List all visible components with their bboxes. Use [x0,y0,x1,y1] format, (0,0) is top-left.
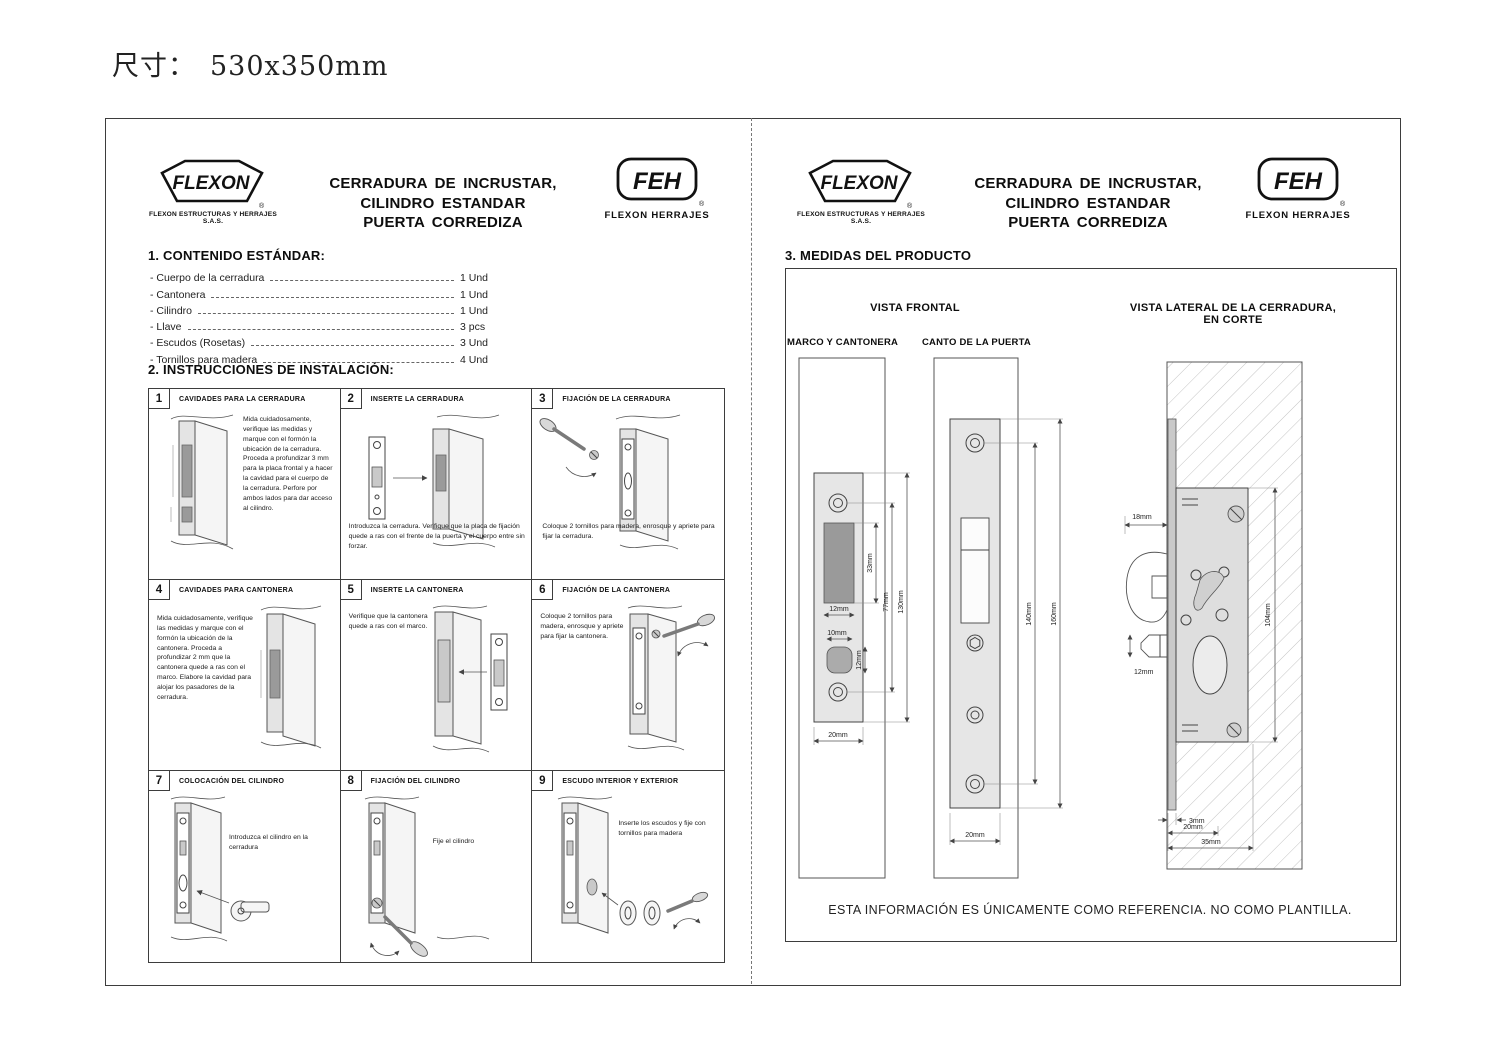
step-caption: Introduzca la cerradura. Verifique que l… [349,522,527,552]
hook-hole [827,647,852,673]
feh-logo: FEH ® [597,156,717,206]
marco-label: MARCO Y CANTONERA [787,337,927,348]
step-panel-1: 1 CAVIDADES PARA LA CERRADURA Mida cuida… [149,389,341,580]
step-number: 8 [341,771,362,791]
flexon-logo: FLEXON ® [155,158,270,208]
flexon-logo-icon: FLEXON ® [155,158,270,210]
lock-faceplate [622,439,634,519]
flexon-logo-subtext: FLEXON ESTRUCTURAS Y HERRAJES S.A.S. [138,211,288,225]
step-title: CAVIDADES PARA CANTONERA [170,580,293,600]
step-caption: Inserte los escudos y fije con tornillos… [618,819,718,839]
latch-slot [824,523,854,603]
step-number: 6 [532,580,553,600]
latch-window [961,518,989,623]
step-title: FIJACIÓN DE LA CANTONERA [553,580,670,600]
step-number: 7 [149,771,170,791]
size-label: 尺寸： [112,51,196,82]
canto-label: CANTO DE LA PUERTA [922,337,1062,348]
escutcheon [620,901,636,925]
svg-text:130mm: 130mm [898,590,905,614]
section3-title: 3. MEDIDAS DEL PRODUCTO [785,248,971,263]
step-number: 2 [341,389,362,409]
lock-faceplate-edge [1168,419,1176,810]
marco-drawing: 12mm 10mm 12mm 33mm 77mm 130mm 20mm [795,352,940,886]
svg-text:12mm: 12mm [1134,669,1154,676]
flexon-logo-right: FLEXON ® [803,158,918,208]
scanned-instruction-sheet: { "meta": { "size_label": "尺寸：", "size_v… [0,0,1497,1058]
section1-title: 1. CONTENIDO ESTÁNDAR: [148,248,325,263]
cylinder-hole [587,879,597,895]
svg-text:140mm: 140mm [1026,602,1033,626]
svg-text:33mm: 33mm [867,553,874,573]
step-panel-9: 9 ESCUDO INTERIOR Y EXTERIOR Inserte los… [532,771,724,962]
step-panel-4: 4 CAVIDADES PARA CANTONERA Mida cuidados… [149,580,341,771]
step-caption: Introduzca el cilindro en la cerradura [229,833,333,853]
svg-text:FLEXON: FLEXON [820,173,898,194]
feh-logo-right: FEH ® [1238,156,1358,206]
list-item: Llave3 pcs [150,317,502,333]
flexon-logo-subtext: FLEXON ESTRUCTURAS Y HERRAJES S.A.S. [786,211,936,225]
step-panel-2: 2 INSERTE LA CERRADURA Introduzca la cer… [341,389,533,580]
step-panel-5: 5 INSERTE LA CANTONERA Verifique que la … [341,580,533,771]
svg-text:10mm: 10mm [827,630,847,637]
step-panel-3: 3 FIJACIÓN DE LA CERRADURA Coloque 2 tor… [532,389,724,580]
step8-illustration [341,791,531,961]
svg-text:FLEXON: FLEXON [172,173,250,194]
sheet-size-note: 尺寸：530x350mm [112,44,389,83]
strike-cavity [270,650,280,698]
svg-text:77mm: 77mm [883,592,890,612]
step-caption: Coloque 2 tornillos para madera, enrosqu… [540,612,628,642]
latch-bolt [1141,635,1167,657]
list-item: Cilindro1 Und [150,301,502,317]
contents-list: Cuerpo de la cerradura1 Und Cantonera1 U… [150,268,502,366]
lock-faceplate [177,813,189,913]
side-view-label: VISTA LATERAL DE LA CERRADURA, EN CORTE [1118,302,1348,326]
svg-text:®: ® [699,200,705,208]
page1-title: CERRADURA DE INCRUSTAR, CILINDRO ESTANDA… [323,174,563,233]
svg-text:®: ® [907,202,913,210]
svg-text:20mm: 20mm [965,832,985,839]
feh-logo-subtext: FLEXON HERRAJES [1233,210,1363,221]
flexon-logo-icon: FLEXON ® [803,158,918,210]
page-fold-divider [751,118,752,984]
feh-logo-subtext: FLEXON HERRAJES [592,210,722,221]
svg-text:20mm: 20mm [828,732,848,739]
svg-text:160mm: 160mm [1051,602,1058,626]
strike-plate [633,628,645,714]
screwdriver-handle [696,612,716,628]
list-item: Escudos (Rosetas)3 Und [150,333,502,349]
svg-text:20mm: 20mm [1183,824,1203,831]
step-caption: Mida cuidadosamente, verifique las medid… [243,415,333,513]
step-number: 3 [532,389,553,409]
step-caption: Fije el cilindro [433,837,513,847]
reference-disclaimer: ESTA INFORMACIÓN ES ÚNICAMENTE COMO REFE… [790,903,1390,917]
lock-cavity [182,445,192,497]
list-item: Cantonera1 Und [150,284,502,300]
svg-text:FEH: FEH [633,168,682,195]
step-caption: Mida cuidadosamente, verifique las medid… [157,614,257,703]
escutcheon [644,901,660,925]
svg-text:18mm: 18mm [1132,514,1152,521]
canto-drawing: 140mm 160mm 20mm [930,352,1105,886]
svg-text:®: ® [259,202,265,210]
svg-text:35mm: 35mm [1201,839,1221,846]
feh-logo-icon: FEH ® [1238,156,1358,208]
step-panel-6: 6 FIJACIÓN DE LA CANTONERA Coloque 2 tor… [532,580,724,771]
svg-text:12mm: 12mm [856,650,863,670]
front-view-label: VISTA FRONTAL [795,302,1035,314]
step7-illustration [149,791,339,961]
step2-illustration [341,409,531,579]
hook-keeper [1126,552,1167,622]
step-number: 5 [341,580,362,600]
lateral-drawing: 104mm 18mm 12mm 3mm 20mm 35mm [1122,358,1392,873]
svg-text:®: ® [1340,200,1346,208]
step-panel-8: 8 FIJACIÓN DEL CILINDRO Fije el cilindro [341,771,533,962]
feh-logo-icon: FEH ® [597,156,717,208]
step-number: 1 [149,389,170,409]
cylinder-hole [1193,636,1227,694]
step-title: INSERTE LA CANTONERA [362,580,464,600]
list-item: Cuerpo de la cerradura1 Und [150,268,502,284]
step-caption: Verifique que la cantonera quede a ras c… [349,612,431,632]
step3-illustration [532,409,722,579]
step-caption: Coloque 2 tornillos para madera, enrosqu… [542,522,718,542]
lock-faceplate [564,813,576,913]
page2-title: CERRADURA DE INCRUSTAR, CILINDRO ESTANDA… [968,174,1208,233]
step-panel-7: 7 COLOCACIÓN DEL CILINDRO Introduzca el … [149,771,341,962]
step-title: FIJACIÓN DEL CILINDRO [362,771,461,791]
step-number: 4 [149,580,170,600]
instruction-grid: 1 CAVIDADES PARA LA CERRADURA Mida cuida… [148,388,725,963]
size-value: 530x350mm [210,51,389,82]
step9-illustration [532,791,722,961]
step-title: FIJACIÓN DE LA CERRADURA [553,389,670,409]
step-title: ESCUDO INTERIOR Y EXTERIOR [553,771,678,791]
svg-text:FEH: FEH [1274,168,1323,195]
screwdriver-handle [691,891,709,904]
section2-title: 2. INSTRUCCIONES DE INSTALACIÓN: [148,362,394,377]
svg-text:12mm: 12mm [829,606,849,613]
svg-text:104mm: 104mm [1265,603,1272,627]
step-title: CAVIDADES PARA LA CERRADURA [170,389,306,409]
step-title: COLOCACIÓN DEL CILINDRO [170,771,284,791]
step-number: 9 [532,771,553,791]
step-title: INSERTE LA CERRADURA [362,389,464,409]
